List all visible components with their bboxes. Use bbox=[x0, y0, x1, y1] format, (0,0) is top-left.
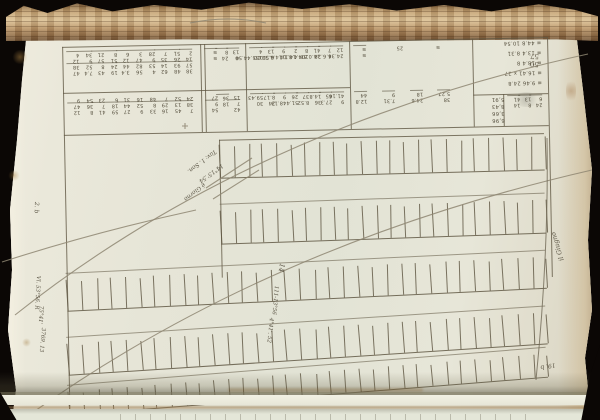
arc-curve bbox=[182, 123, 188, 129]
left-margin-note: 75°41' bbox=[37, 306, 44, 325]
facing-page-ticks bbox=[120, 414, 540, 420]
foxing-spot bbox=[8, 170, 20, 181]
fold-ridge-highlight bbox=[0, 395, 600, 405]
dirt-smudge bbox=[228, 388, 423, 392]
book-photo: 47381247.452934438572119245183.444126568… bbox=[0, 0, 600, 420]
rust-stain bbox=[566, 78, 576, 104]
arc-curve bbox=[213, 170, 259, 199]
mid-grid-note: 14 bbox=[277, 263, 286, 273]
corner-note: 2. b bbox=[33, 202, 40, 214]
foxing-spot bbox=[22, 338, 31, 347]
grid-border-curve bbox=[536, 138, 547, 380]
arc-curve bbox=[15, 54, 588, 315]
arc-curve bbox=[190, 19, 266, 23]
arc-overlay bbox=[0, 0, 600, 420]
folio-number: 50 57 bbox=[530, 52, 539, 68]
ink-smudge bbox=[512, 92, 540, 107]
folio-line: 57 bbox=[530, 52, 539, 60]
foxing-spot bbox=[12, 50, 28, 64]
folio-line: 50 bbox=[530, 60, 539, 68]
